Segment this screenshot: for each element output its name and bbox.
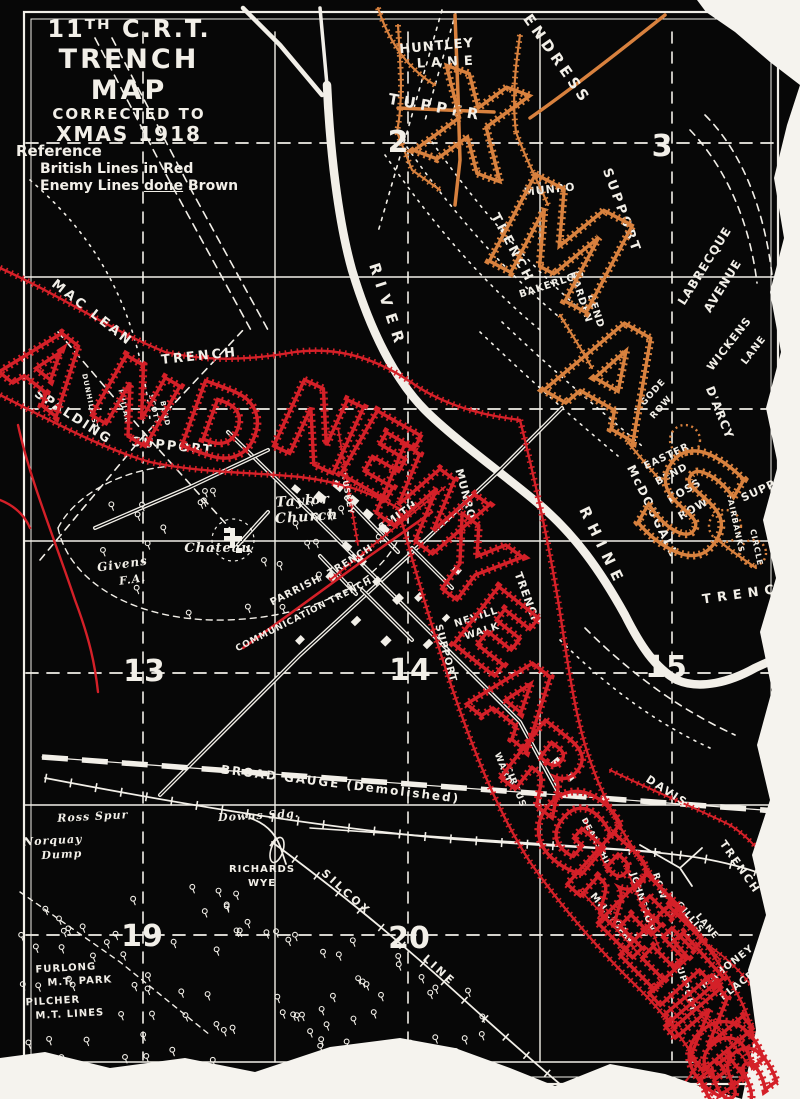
map-label: Dump: [40, 847, 82, 862]
map-title-line3: CORRECTED TO: [24, 106, 234, 123]
map-legend: Reference British Lines in Red Enemy Lin…: [16, 142, 246, 196]
grid-number: 2: [388, 125, 409, 160]
map-label: RICHARDS: [229, 864, 295, 875]
map-title-line2: TRENCH MAP: [24, 44, 234, 106]
grid-number: 19: [121, 919, 163, 954]
map-label: Chateau: [184, 541, 251, 556]
map-title-line1: 11ᵀᴴ C.R.T.: [24, 16, 234, 44]
legend-enemy-underlined-word: done: [144, 178, 183, 194]
grid-number: 14: [389, 653, 431, 688]
grid-number: 3: [652, 129, 673, 164]
trench-map-page: HUNTLEYLANEENDRESSTUPPERBAKERLOOMUNROSUP…: [0, 0, 800, 1099]
grid-number: 20: [388, 921, 430, 956]
grid-number: 13: [123, 654, 165, 689]
map-label: WYE: [248, 878, 276, 889]
map-title-block: 11ᵀᴴ C.R.T. TRENCH MAP CORRECTED TO XMAS…: [24, 16, 234, 146]
legend-heading: Reference: [16, 142, 246, 161]
grid-number: 15: [645, 650, 687, 685]
legend-enemy-line: Enemy Lines done Brown: [16, 178, 246, 196]
legend-british-line: British Lines in Red: [16, 161, 246, 179]
